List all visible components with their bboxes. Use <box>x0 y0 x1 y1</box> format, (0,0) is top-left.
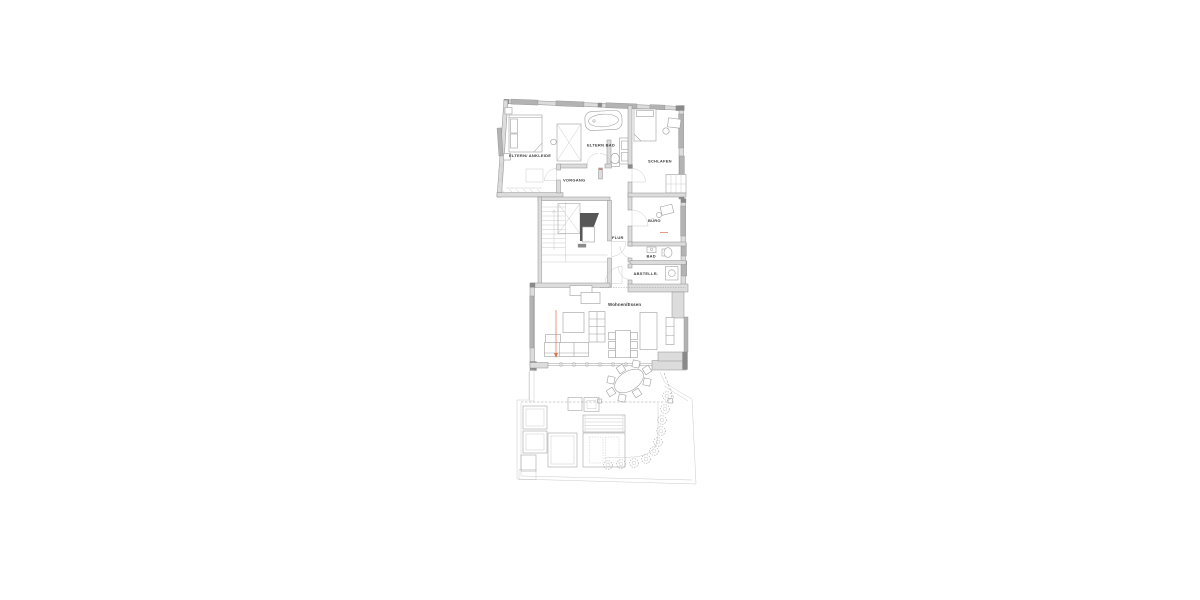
left-planters <box>521 406 547 471</box>
room-bad: BAD <box>620 242 686 265</box>
awning-post <box>598 399 602 403</box>
door-arc <box>545 169 557 181</box>
oval-table <box>610 364 647 397</box>
planter-square <box>568 398 582 411</box>
elevator-shaft <box>558 204 580 234</box>
wc <box>662 248 672 258</box>
door-arc <box>632 210 648 226</box>
bathtub <box>585 110 623 131</box>
entry-door-arc <box>612 242 627 257</box>
kitchen-wall <box>628 284 688 292</box>
room-label: SCHLAFEN <box>648 159 672 164</box>
room-label: Wohnen/Essen <box>608 302 641 307</box>
stair-core <box>538 197 612 287</box>
closet-hatching <box>498 162 542 195</box>
room-label: ELTERN/ ANKLEIDE <box>509 153 551 158</box>
terrace-left-wall <box>530 370 535 401</box>
entry-step <box>583 227 595 242</box>
room-label: ABSTELLR. <box>634 271 659 276</box>
corridor-flur: FLUR <box>612 235 627 257</box>
rug <box>526 169 543 182</box>
door-arc <box>620 246 632 258</box>
shelf-divider <box>589 312 605 343</box>
bench <box>583 415 625 432</box>
planter-square-double <box>584 398 599 412</box>
kitchen-tall-units <box>672 292 684 318</box>
dining-set <box>609 331 638 358</box>
window <box>556 101 584 107</box>
floorplan-svg: ELTERN/ ANKLEIDE ELTERN BAD <box>0 0 1200 600</box>
room-label: VORGANG <box>563 178 585 183</box>
window <box>681 206 686 236</box>
armchair <box>581 293 600 304</box>
room-abstellraum: ABSTELLR. <box>618 264 678 286</box>
washing-machine <box>666 267 679 281</box>
window <box>530 296 534 348</box>
raised-bed <box>548 433 577 467</box>
wardrobe <box>666 175 686 194</box>
room-label: ELTERN BAD <box>587 143 615 148</box>
washbasin <box>647 247 656 253</box>
room-label: BAD <box>647 254 656 259</box>
room-label: BÜRO <box>648 218 661 223</box>
left-exterior-wall <box>497 100 508 197</box>
kitchen-island <box>640 313 657 350</box>
room-label: FLUR <box>612 235 624 240</box>
room-buero: BÜRO <box>628 193 686 246</box>
sofa <box>545 335 589 357</box>
terrace <box>517 360 696 484</box>
floorplan-page: ELTERN/ ANKLEIDE ELTERN BAD <box>0 0 1200 600</box>
bed <box>634 109 656 141</box>
room-eltern-ankleide: ELTERN/ ANKLEIDE <box>497 108 581 198</box>
window <box>511 99 538 105</box>
window <box>684 317 688 352</box>
desk-and-chair <box>663 118 681 134</box>
planting-bed-edge <box>604 403 658 458</box>
room-schlafen: SCHLAFEN <box>632 109 686 193</box>
dining-table <box>616 331 631 358</box>
desk-buero <box>656 204 673 217</box>
wc <box>611 153 620 166</box>
dressing-unit <box>551 124 581 161</box>
corridor-vorgang: VORGANG <box>545 164 603 193</box>
section-marker <box>599 169 602 170</box>
kitchen-counter <box>666 318 674 345</box>
loungers <box>583 433 625 467</box>
door-arc <box>632 169 646 183</box>
coffee-table <box>563 313 584 333</box>
window <box>606 103 637 109</box>
